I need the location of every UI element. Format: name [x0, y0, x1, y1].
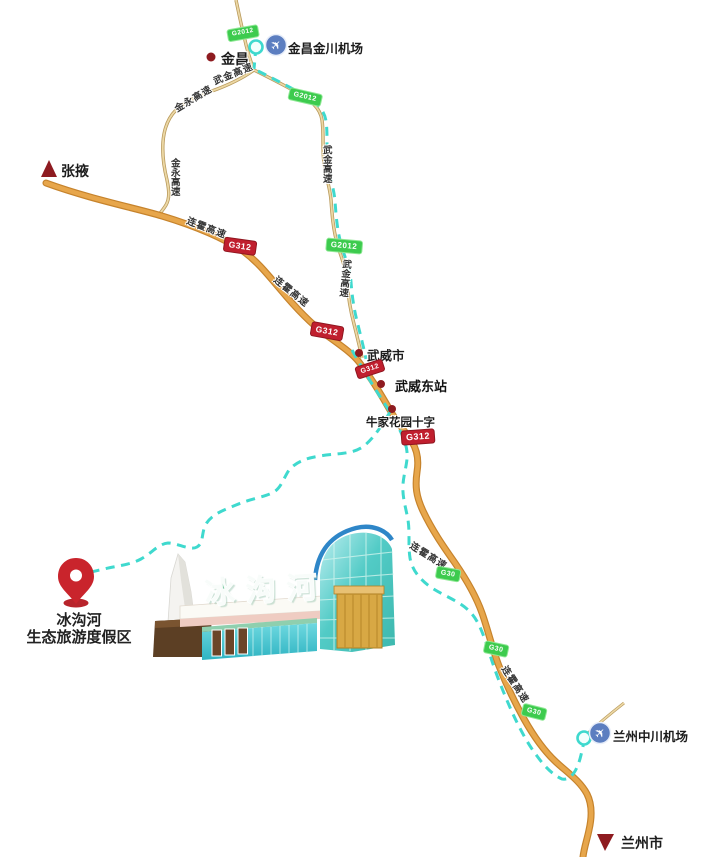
map-canvas: ✈ ✈ [0, 0, 702, 857]
route-map: ✈ ✈ [0, 0, 702, 857]
jinchang-airport-airplane-icon: ✈ [266, 35, 287, 56]
jinchang-airport-node [250, 41, 263, 54]
jinchang-airport-label: 金昌金川机场 [288, 38, 363, 57]
badge-g312-4: G312 [402, 429, 435, 444]
wuwei-dot [355, 349, 363, 357]
lanzhou-airport-label: 兰州中川机场 [613, 726, 688, 745]
zhangye-label: 张掖 [61, 161, 89, 181]
route-jinchang-to-wuwei [258, 71, 366, 359]
road-label-wujin-2: 武金高速 [321, 145, 331, 183]
niujia-crossing-dot [388, 405, 396, 413]
road-label-jinyong-2: 金永高速 [169, 158, 179, 196]
lanzhou-airport-airplane-icon: ✈ [590, 723, 611, 744]
lanzhou-direction-icon [597, 834, 614, 851]
resort-subtitle-label: 生态旅游度假区 [20, 626, 138, 647]
wuwei-east-station-dot [377, 380, 385, 388]
resort-gate-sign: 冰沟河 [203, 562, 328, 612]
niujia-crossing-label: 牛家花园十字 [366, 414, 435, 430]
lanzhou-city-label: 兰州市 [621, 833, 663, 853]
main-road-g312 [46, 183, 591, 857]
resort-pin-icon [58, 558, 94, 608]
lanzhou-airport-node [578, 732, 591, 745]
jinchang-dot [207, 53, 216, 62]
wuwei-east-station-label: 武威东站 [395, 376, 447, 395]
zhangye-direction-icon [41, 160, 57, 177]
